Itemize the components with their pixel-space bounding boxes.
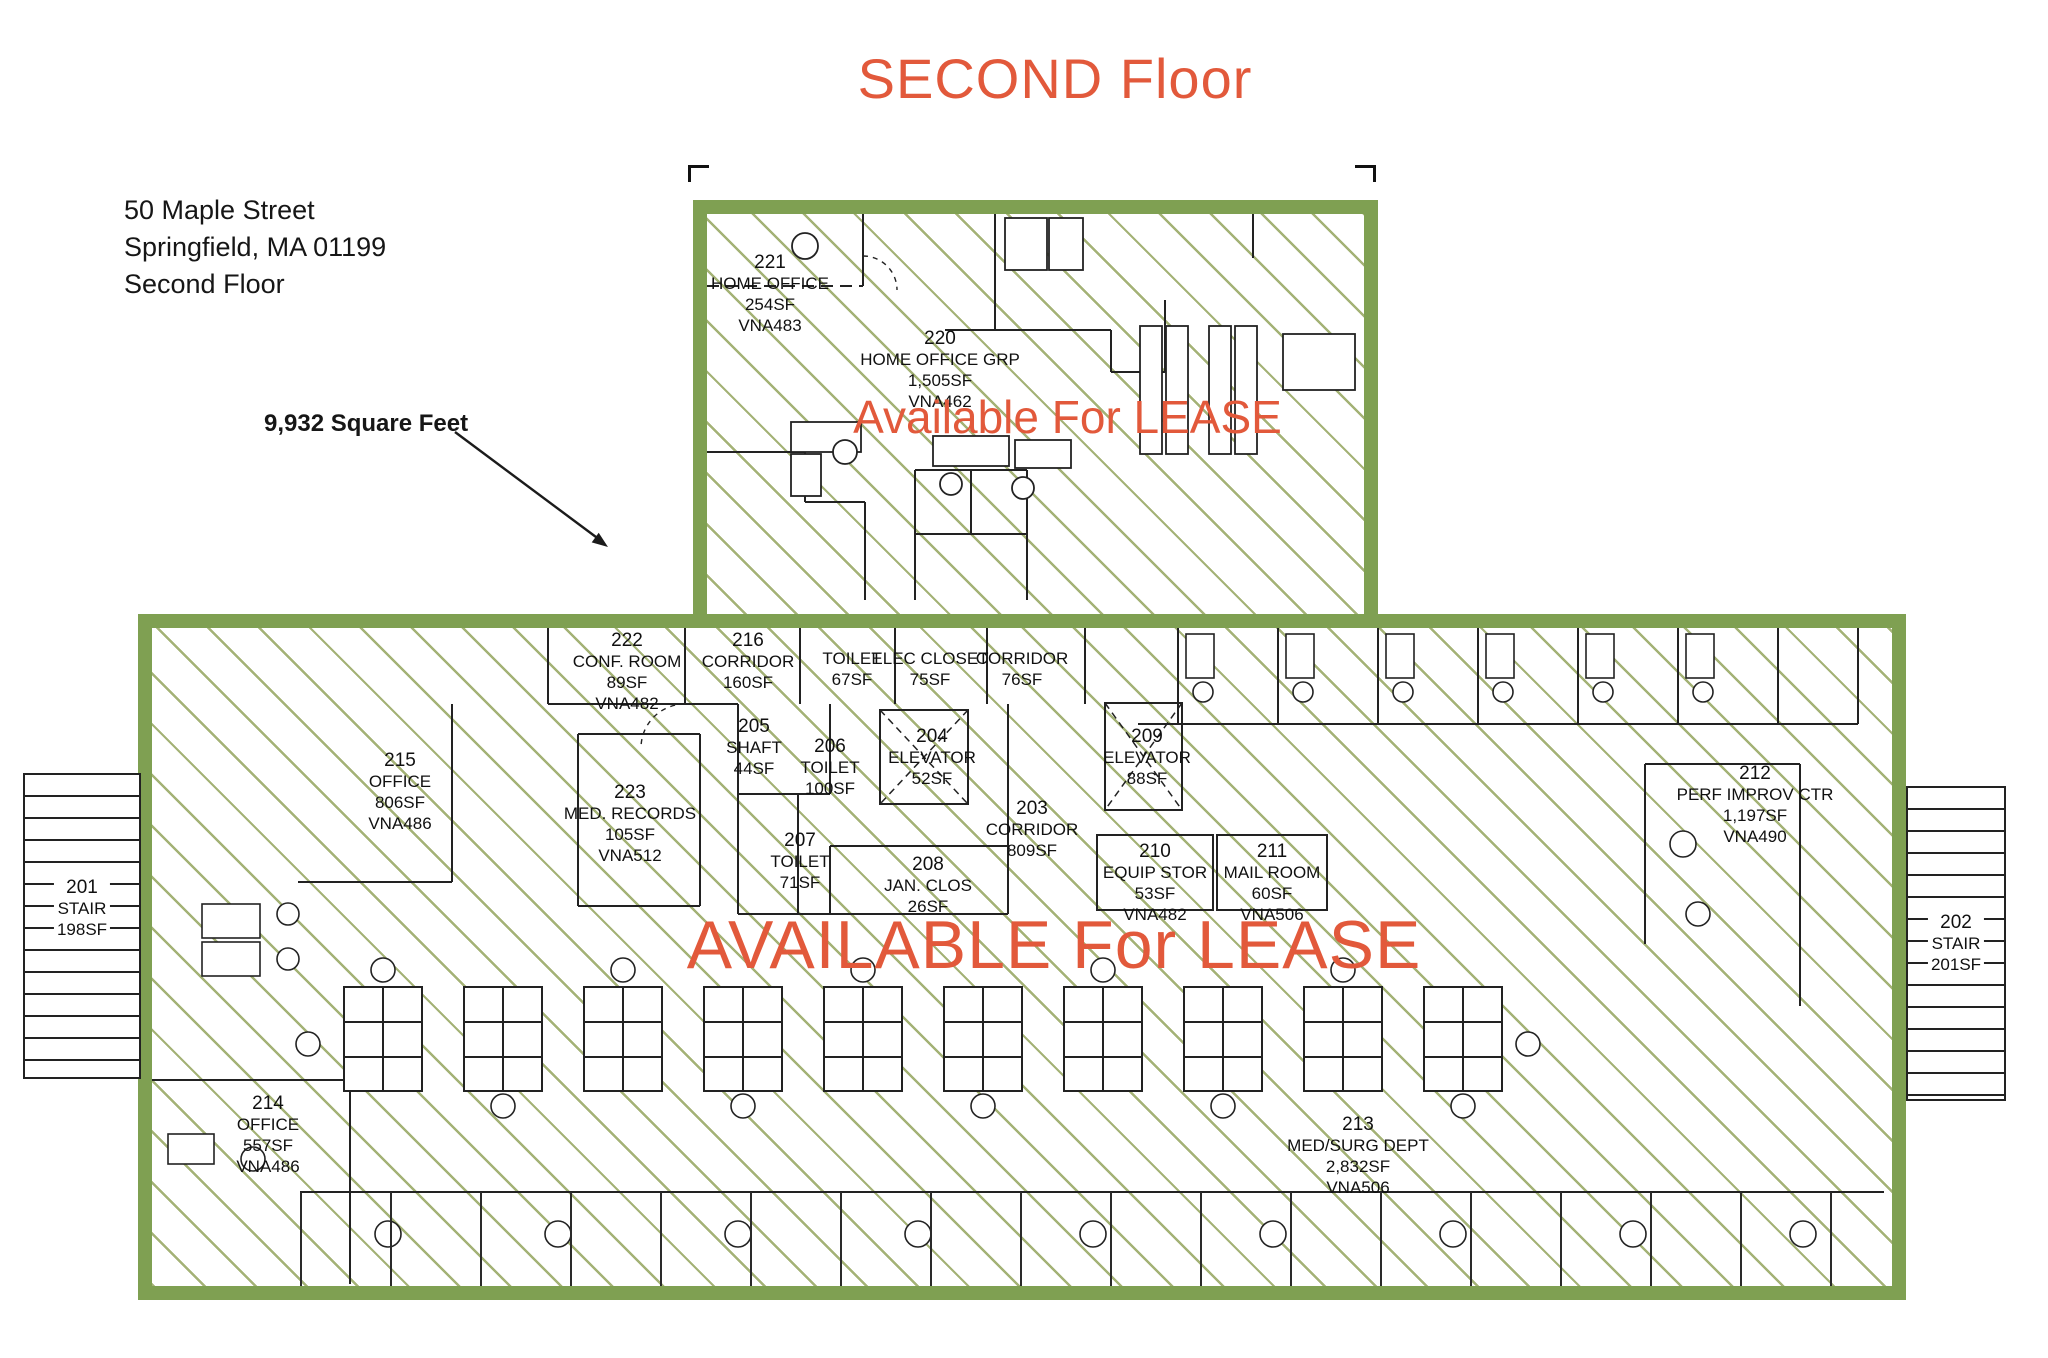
room-label-201: 201 STAIR 198SF (54, 875, 110, 942)
floor-plan-page: SECOND Floor 50 Maple Street Springfield… (0, 0, 2048, 1358)
room-label-222: 222 CONF. ROOM 89SF VNA482 (573, 630, 682, 714)
cubicle-cluster (1423, 986, 1503, 1092)
address-line-1: 50 Maple Street (124, 192, 386, 229)
lower-lease-text: AVAILABLE For LEASE (687, 906, 1422, 984)
room-label-corridor-76: CORRIDOR 76SF (976, 648, 1069, 690)
square-feet-note: 9,932 Square Feet (264, 410, 468, 438)
address-line-2: Springfield, MA 01199 (124, 229, 386, 266)
stair-201: 201 STAIR 198SF (23, 773, 141, 1079)
room-label-204: 204 ELEVATOR 52SF (888, 726, 976, 789)
room-label-202: 202 STAIR 201SF (1928, 910, 1984, 977)
cubicle-cluster (823, 986, 903, 1092)
upper-lease-text: Available For LEASE (853, 390, 1282, 444)
room-label-214: 214 OFFICE 557SF VNA486 (236, 1093, 299, 1177)
cubicle-cluster (703, 986, 783, 1092)
room-label-205: 205 SHAFT 44SF (726, 716, 782, 779)
property-address: 50 Maple Street Springfield, MA 01199 Se… (124, 192, 386, 303)
room-label-215: 215 OFFICE 806SF VNA486 (368, 750, 431, 834)
room-label-213: 213 MED/SURG DEPT 2,832SF VNA506 (1287, 1114, 1429, 1198)
cubicle-cluster (943, 986, 1023, 1092)
scan-corner-mark-right (1355, 165, 1376, 182)
scan-corner-mark-left (688, 165, 709, 182)
stair-202: 202 STAIR 201SF (1906, 786, 2006, 1101)
room-label-206: 206 TOILET 100SF (800, 736, 859, 799)
cubicle-cluster (583, 986, 663, 1092)
page-title: SECOND Floor (858, 46, 1253, 111)
area-pointer-arrow (450, 420, 630, 560)
room-label-203: 203 CORRIDOR 809SF (986, 798, 1079, 861)
cubicle-cluster (463, 986, 543, 1092)
cubicle-cluster (1183, 986, 1263, 1092)
room-label-elec-closet: ELEC CLOSET 75SF (871, 648, 988, 690)
lower-lease-unit: 222 CONF. ROOM 89SF VNA482 216 CORRIDOR … (138, 614, 1906, 1300)
room-label-207: 207 TOILET 71SF (770, 830, 829, 893)
room-label-216: 216 CORRIDOR 160SF (702, 630, 795, 693)
cubicle-cluster (1303, 986, 1383, 1092)
room-label-223: 223 MED. RECORDS 105SF VNA512 (564, 782, 696, 866)
address-line-3: Second Floor (124, 266, 386, 303)
cubicle-cluster (1063, 986, 1143, 1092)
perimeter-offices-band (300, 1192, 1884, 1286)
room-label-221: 221 HOME OFFICE 254SF VNA483 (711, 252, 829, 336)
upper-lease-unit: 221 HOME OFFICE 254SF VNA483 220 HOME OF… (693, 200, 1378, 628)
room-label-209: 209 ELEVATOR 88SF (1103, 726, 1191, 789)
room-label-212: 212 PERF IMPROV CTR 1,197SF VNA490 (1677, 763, 1834, 847)
cubicle-cluster (343, 986, 423, 1092)
